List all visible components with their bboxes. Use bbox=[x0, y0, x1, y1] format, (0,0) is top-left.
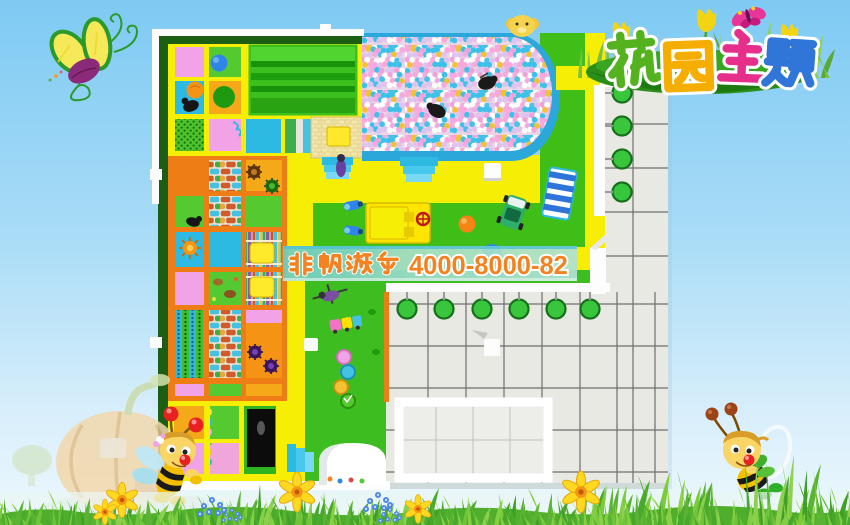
svg-text:4000-8000-82: 4000-8000-82 bbox=[409, 252, 568, 280]
